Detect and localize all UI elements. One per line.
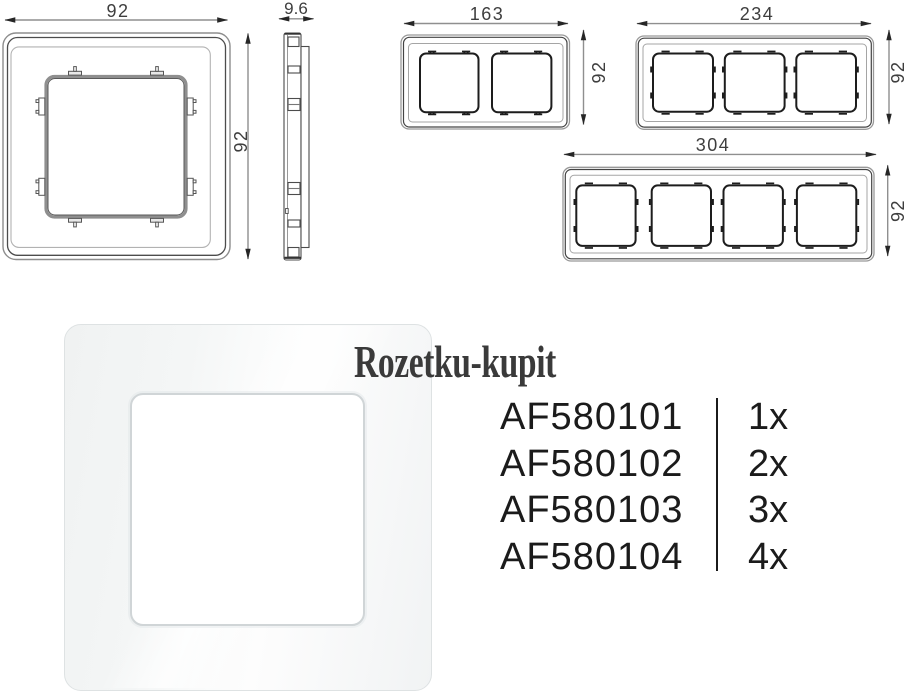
- svg-text:92: 92: [231, 129, 251, 152]
- svg-text:92: 92: [589, 60, 609, 83]
- svg-text:234: 234: [740, 4, 775, 24]
- svg-text:92: 92: [106, 1, 129, 21]
- svg-text:9.6: 9.6: [284, 0, 308, 18]
- svg-text:304: 304: [696, 135, 731, 155]
- svg-text:92: 92: [888, 199, 905, 222]
- svg-text:163: 163: [470, 4, 505, 24]
- svg-text:92: 92: [888, 60, 905, 83]
